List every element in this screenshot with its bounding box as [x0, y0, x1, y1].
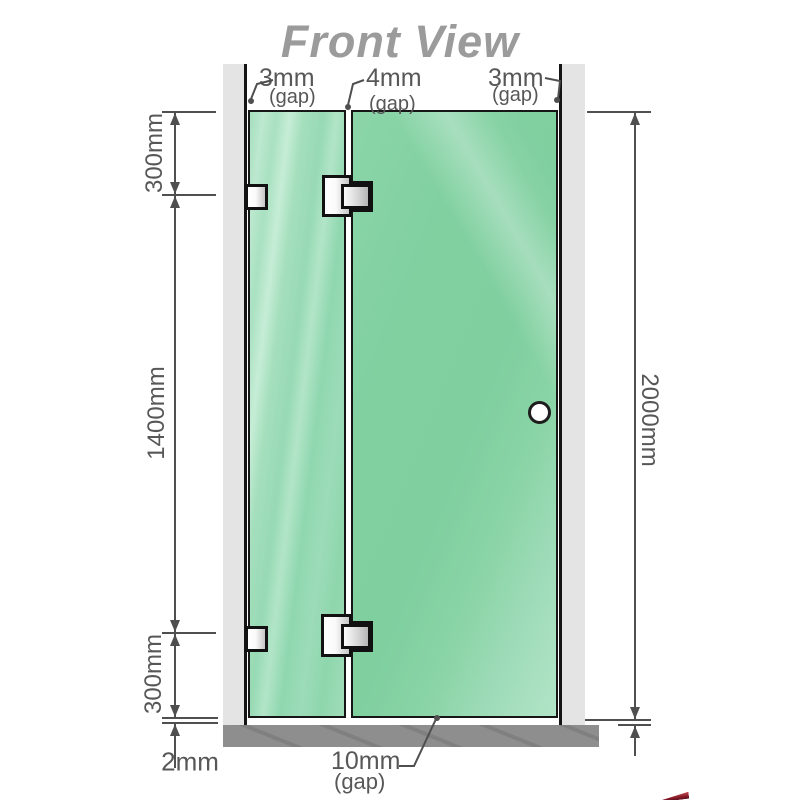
dim-arrow-down: [170, 182, 180, 194]
dim-arrow-up: [170, 634, 180, 646]
dim-arrow-up: [170, 724, 180, 736]
gap-label-right-unit: (gap): [492, 84, 539, 107]
wall-right: [562, 64, 585, 725]
dim-label-2mm: 2mm: [161, 747, 219, 778]
dim-arrow-down: [170, 705, 180, 717]
dim-label-2000: 2000mm: [635, 373, 663, 466]
wall-bracket-bottom: [245, 626, 268, 652]
dim-arrow-up: [630, 113, 640, 125]
dim-arrow-down: [630, 707, 640, 719]
glass-door-panel: [351, 110, 558, 718]
red-watermark-fragment: [651, 792, 690, 800]
leader-line-gap-right: [545, 78, 560, 99]
front-view-diagram: Front View 300mm 1400mm 300mm 2mm: [0, 0, 800, 800]
dim-label-10mm-unit: (gap): [334, 769, 385, 795]
door-handle-knob: [528, 401, 551, 424]
dim-arrow-down: [170, 620, 180, 632]
dim-tick: [587, 111, 651, 113]
dim-label-300-top: 300mm: [141, 113, 169, 193]
dim-tick: [585, 719, 651, 721]
page-title: Front View: [0, 16, 800, 68]
dim-line-1400: [174, 196, 176, 632]
dim-arrow-up: [630, 726, 640, 738]
gap-label-middle: 4mm: [366, 64, 422, 93]
dim-tick: [162, 717, 218, 719]
leader-dot: [248, 98, 254, 104]
wall-left: [223, 64, 244, 725]
dim-label-300-bottom: 300mm: [140, 634, 168, 714]
hinge-top-clamp-tab: [341, 184, 371, 209]
wall-bracket-top: [245, 184, 268, 210]
hinge-bottom-clamp-tab: [341, 624, 371, 649]
leader-line-gap-middle: [348, 80, 364, 105]
floor-base: [223, 725, 599, 747]
dim-label-1400: 1400mm: [143, 366, 171, 459]
gap-label-middle-unit: (gap): [369, 93, 416, 116]
dim-arrow-up: [170, 196, 180, 208]
gap-label-left-unit: (gap): [269, 86, 316, 109]
dim-arrow-up: [170, 113, 180, 125]
